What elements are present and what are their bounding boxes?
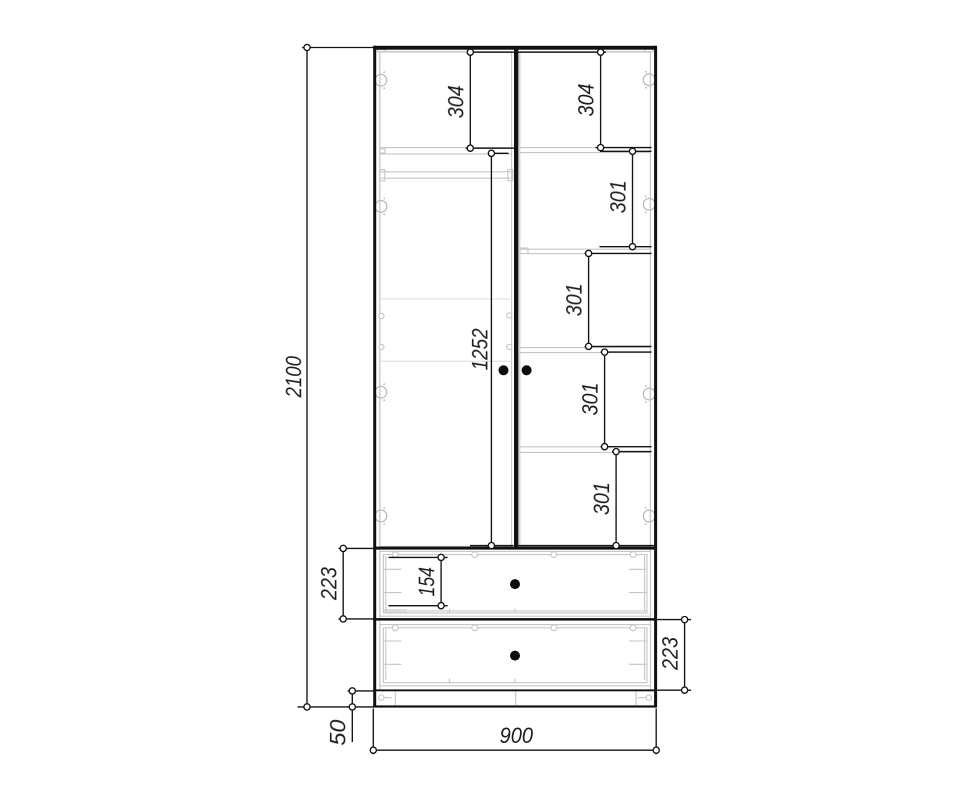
svg-text:223: 223 bbox=[316, 566, 341, 601]
svg-text:304: 304 bbox=[443, 85, 468, 118]
svg-text:50: 50 bbox=[325, 719, 350, 746]
svg-text:2100: 2100 bbox=[281, 355, 306, 398]
svg-text:304: 304 bbox=[574, 84, 599, 117]
svg-text:301: 301 bbox=[606, 180, 631, 213]
svg-text:301: 301 bbox=[562, 283, 587, 316]
svg-text:154: 154 bbox=[414, 567, 439, 597]
svg-text:900: 900 bbox=[500, 723, 534, 748]
svg-text:1252: 1252 bbox=[467, 328, 492, 370]
svg-text:223: 223 bbox=[658, 636, 683, 671]
svg-text:301: 301 bbox=[589, 482, 614, 515]
svg-text:301: 301 bbox=[578, 383, 603, 416]
